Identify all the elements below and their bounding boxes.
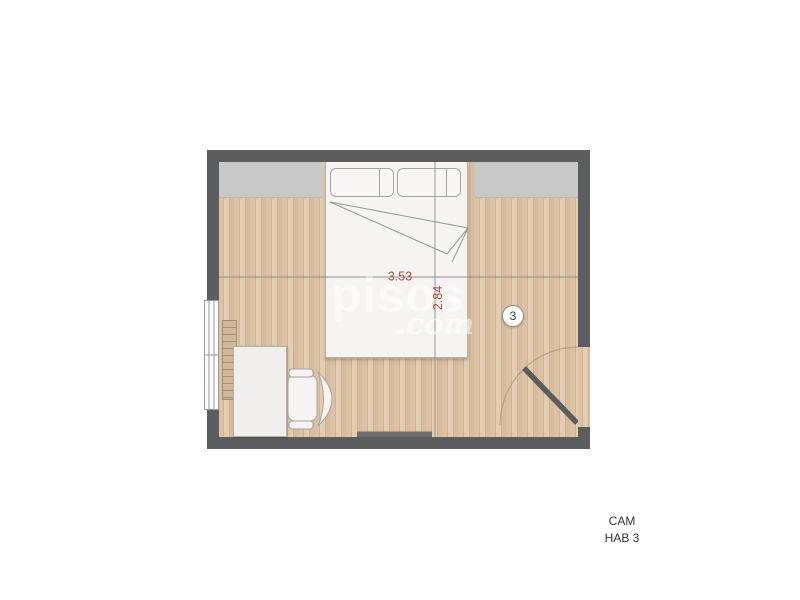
caption: CAM HAB 3 <box>582 513 662 547</box>
room-number-badge: 3 <box>502 305 524 327</box>
caption-line2: HAB 3 <box>582 530 662 547</box>
caption-line1: CAM <box>582 513 662 530</box>
window-frame <box>204 300 219 410</box>
door-opening <box>578 347 590 427</box>
room-outline: pisos .com 3.53 2.84 3 <box>207 150 590 449</box>
width-dimension-label: 3.53 <box>388 269 412 283</box>
watermark: pisos .com <box>219 162 578 437</box>
window <box>204 300 219 410</box>
floorplan-image: pisos .com 3.53 2.84 3 CAM HAB 3 <box>0 0 800 600</box>
height-dimension-label: 2.84 <box>431 286 445 310</box>
watermark-tld: .com <box>396 307 474 341</box>
